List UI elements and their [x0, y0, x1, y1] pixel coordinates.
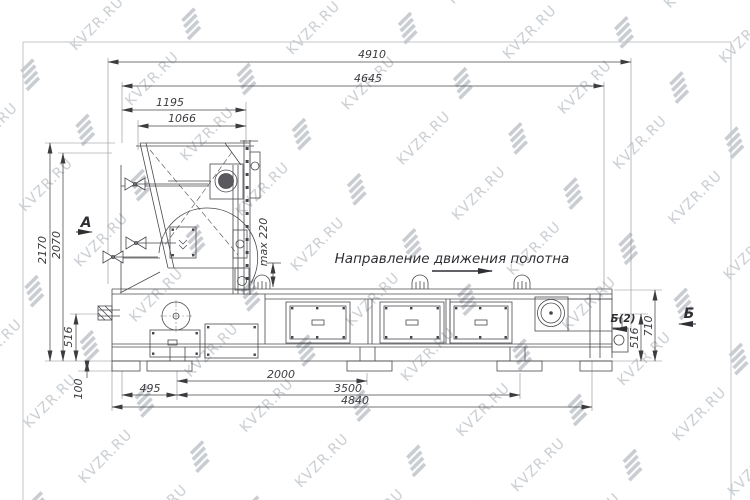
dim-label: 516 — [62, 327, 75, 348]
dim-label: 1195 — [156, 96, 184, 109]
dim-label: 516 — [628, 328, 641, 349]
drawing-canvas: KVZR.RU — [0, 0, 750, 500]
dim-label: 495 — [140, 382, 161, 395]
section-b-label: Б — [684, 306, 695, 322]
dim-label: 710 — [642, 316, 655, 337]
section-a-label: А — [80, 215, 92, 231]
dim-label: 1066 — [168, 112, 196, 125]
dim-label: 2000 — [267, 368, 295, 381]
dim-label: 2070 — [50, 231, 63, 259]
dim-label: 4840 — [341, 394, 369, 407]
section-b2-label: Б(2) — [611, 313, 636, 325]
dim-label: 100 — [72, 379, 85, 400]
direction-label: Направление движения полотна — [335, 251, 570, 267]
blueprint-page: KVZR.RU — [0, 0, 750, 500]
max-height-note: max 220 — [257, 218, 270, 266]
dim-label: 2170 — [36, 236, 49, 264]
dim-label: 4910 — [358, 48, 386, 61]
dim-label: 4645 — [354, 72, 382, 85]
